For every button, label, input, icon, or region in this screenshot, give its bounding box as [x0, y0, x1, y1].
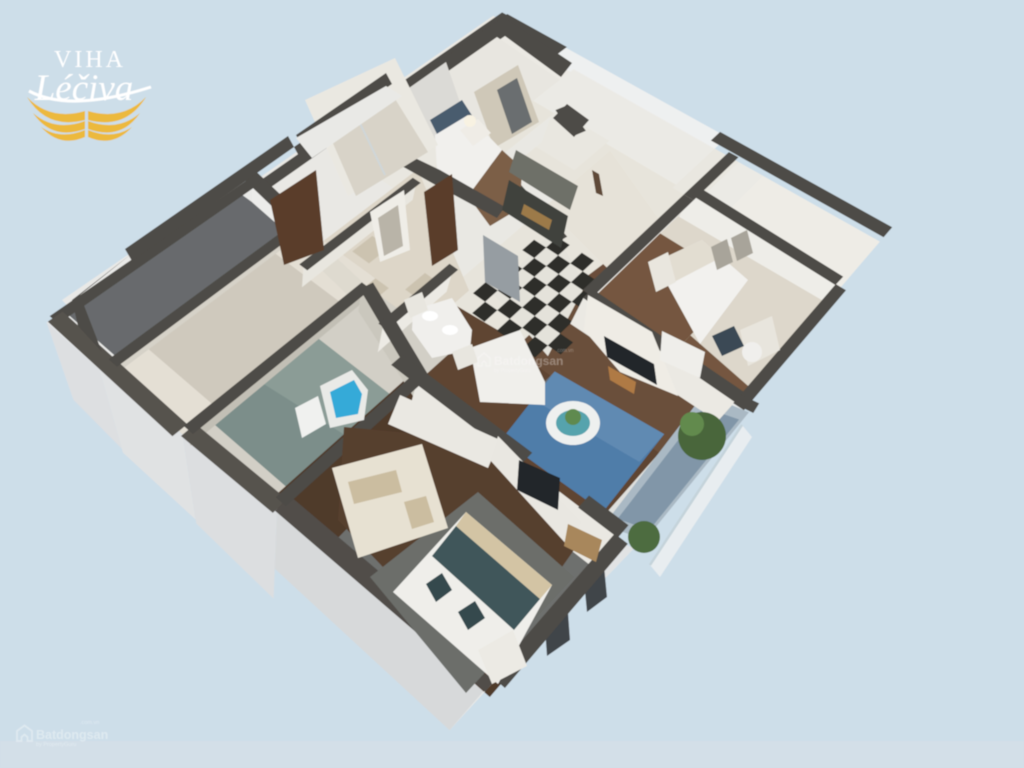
- svg-text:by PropertyGuru: by PropertyGuru: [494, 368, 531, 374]
- svg-text:by PropertyGuru: by PropertyGuru: [36, 742, 76, 748]
- svg-text:Léčiva: Léčiva: [34, 68, 134, 109]
- svg-text:.com.vn: .com.vn: [80, 720, 99, 726]
- svg-text:Batdongsan: Batdongsan: [494, 354, 563, 368]
- svg-text:Batdongsan: Batdongsan: [36, 728, 108, 742]
- svg-text:.com.vn: .com.vn: [556, 348, 574, 354]
